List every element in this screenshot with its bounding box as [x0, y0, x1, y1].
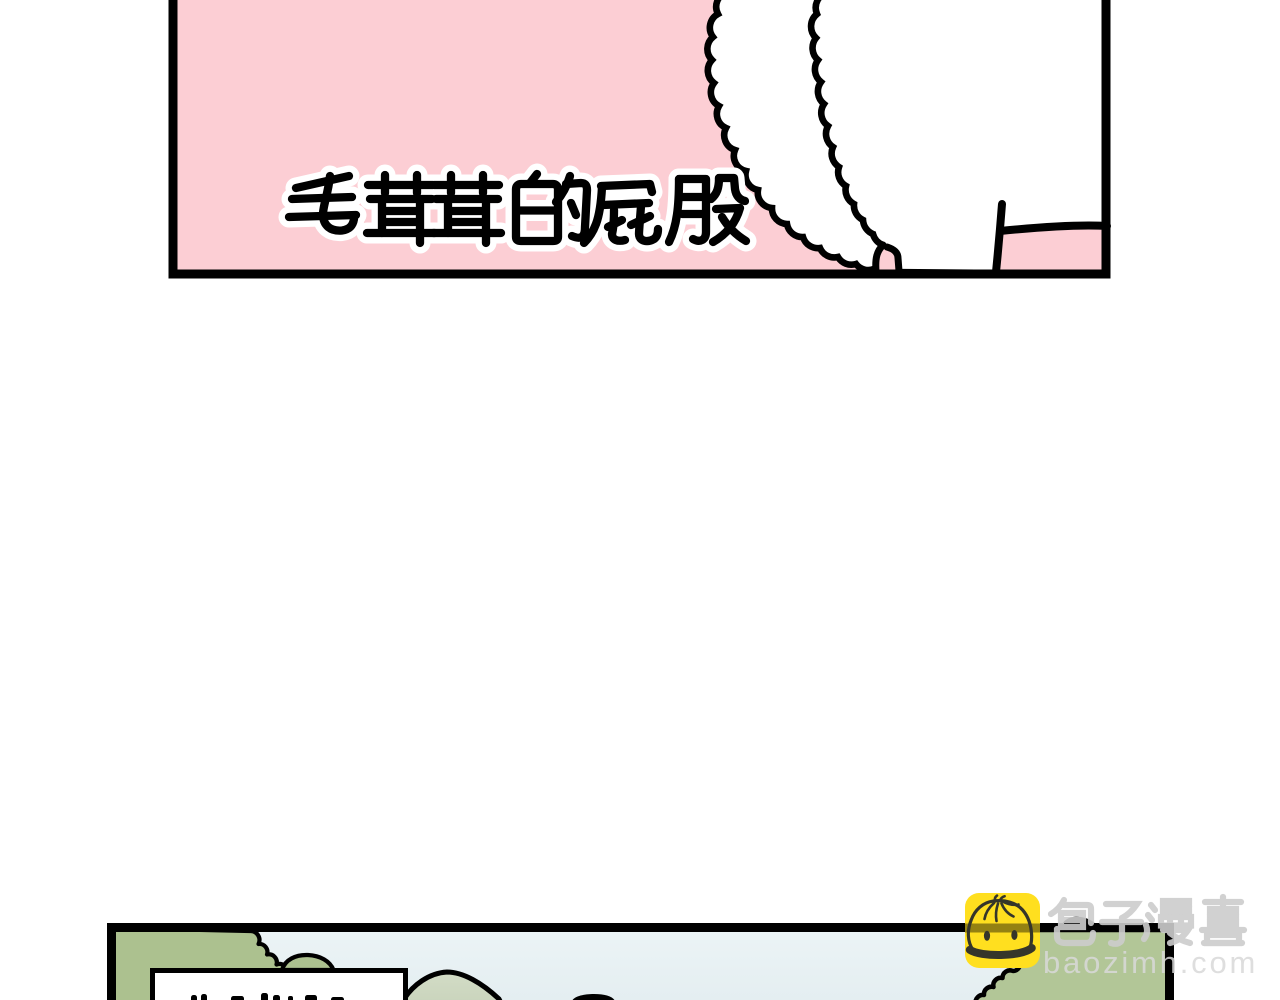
- svg-text:baozimh.com: baozimh.com: [1043, 945, 1258, 980]
